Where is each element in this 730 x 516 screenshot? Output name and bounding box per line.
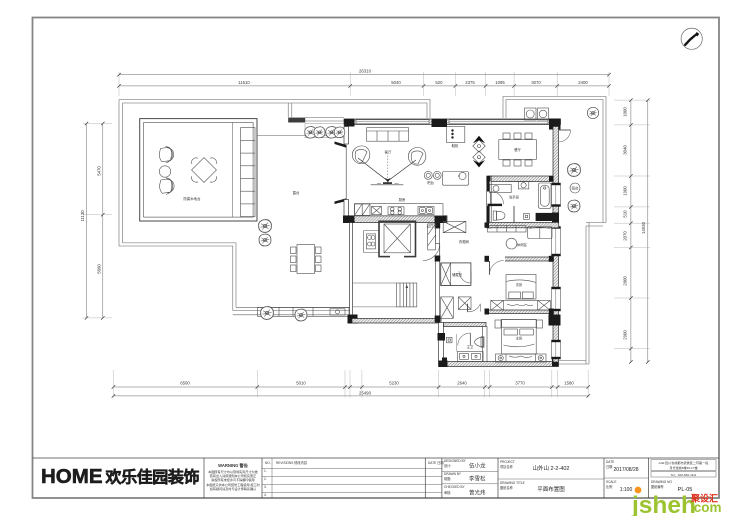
- svg-text:储藏室: 储藏室: [452, 272, 463, 277]
- svg-text:Tel：400-660-1111: Tel：400-660-1111: [671, 473, 697, 477]
- svg-text:DATE 日期: DATE 日期: [428, 460, 444, 465]
- svg-text:1095: 1095: [495, 80, 505, 85]
- svg-text:5230: 5230: [389, 381, 399, 386]
- svg-text:520: 520: [435, 80, 443, 85]
- svg-text:山外山 2-2-402: 山外山 2-2-402: [533, 464, 570, 472]
- svg-text:CHECKED BY: CHECKED BY: [444, 485, 466, 489]
- svg-text:图纸编号: 图纸编号: [651, 484, 664, 489]
- svg-text:DRAWN BY: DRAWN BY: [444, 472, 462, 476]
- svg-text:3070: 3070: [531, 80, 541, 85]
- svg-text:防腐木地台: 防腐木地台: [184, 196, 202, 201]
- svg-text:吧台: 吧台: [427, 180, 434, 185]
- svg-text:2.: 2.: [264, 477, 267, 481]
- svg-text:月光珑城6幢16-17楼: 月光珑城6幢16-17楼: [669, 465, 697, 470]
- svg-text:曾光炜: 曾光炜: [469, 489, 486, 497]
- svg-text:阳台: 阳台: [572, 186, 579, 191]
- svg-text:审核:: 审核:: [444, 490, 451, 495]
- svg-text:Add:四川省成都市武侯区二环路一段: Add:四川省成都市武侯区二环路一段: [659, 460, 709, 465]
- svg-text:NO.: NO.: [265, 461, 271, 465]
- svg-text:2375: 2375: [465, 80, 475, 85]
- svg-text:11510: 11510: [238, 80, 250, 85]
- svg-text:1000: 1000: [623, 107, 628, 117]
- svg-text:DRAWING TITLE: DRAWING TITLE: [500, 481, 525, 485]
- svg-text:SCALE: SCALE: [606, 480, 616, 484]
- svg-text:休闲区: 休闲区: [517, 242, 528, 247]
- svg-text:项目名称: 项目名称: [500, 464, 514, 469]
- svg-text:聚设汇: 聚设汇: [690, 493, 718, 504]
- svg-text:WARNING 警告: WARNING 警告: [218, 462, 249, 469]
- svg-text:5660: 5660: [97, 264, 102, 274]
- svg-text:露台: 露台: [293, 190, 300, 195]
- svg-text:次卧: 次卧: [516, 282, 523, 287]
- svg-text:jsheh: jsheh: [631, 492, 696, 516]
- svg-text:客厅: 客厅: [385, 150, 392, 155]
- svg-text:主卫: 主卫: [467, 344, 474, 349]
- svg-text:伍小龙: 伍小龙: [469, 462, 486, 470]
- svg-text:510: 510: [623, 210, 628, 218]
- svg-text:5470: 5470: [97, 166, 102, 176]
- svg-text:设计:: 设计:: [444, 463, 451, 468]
- svg-text:3770: 3770: [515, 381, 525, 386]
- svg-text:11130: 11130: [80, 210, 85, 222]
- svg-text:平面布置图: 平面布置图: [537, 485, 565, 493]
- svg-text:1:100: 1:100: [620, 487, 633, 493]
- svg-text:2900: 2900: [623, 330, 628, 340]
- svg-text:5040: 5040: [391, 80, 401, 85]
- svg-text:2400: 2400: [578, 80, 588, 85]
- svg-text:日期: 日期: [606, 464, 612, 469]
- svg-text:DATE: DATE: [606, 460, 614, 464]
- svg-text:主卧: 主卧: [516, 336, 523, 341]
- svg-text:制图:: 制图:: [444, 476, 451, 481]
- svg-text:3040: 3040: [623, 145, 628, 155]
- svg-text:PROJECT: PROJECT: [500, 460, 515, 464]
- svg-text:25490: 25490: [359, 390, 372, 395]
- svg-text:HOME: HOME: [41, 465, 103, 488]
- svg-text:厨房: 厨房: [399, 197, 406, 202]
- svg-text:2070: 2070: [623, 231, 628, 241]
- svg-text:欢乐佳园装饰: 欢乐佳园装饰: [105, 468, 200, 487]
- svg-text:1900: 1900: [623, 186, 628, 196]
- svg-text:版权所有未经许可不得翻印使用: 版权所有未经许可不得翻印使用: [211, 477, 254, 482]
- svg-text:图纸名称: 图纸名称: [500, 485, 514, 490]
- svg-text:5010: 5010: [296, 381, 306, 386]
- svg-text:李雪松: 李雪松: [469, 475, 486, 483]
- svg-text:REVISIONS 修改内容: REVISIONS 修改内容: [276, 460, 308, 465]
- svg-text:比例: 比例: [606, 484, 612, 489]
- svg-text:DESIGNED BY: DESIGNED BY: [444, 459, 467, 463]
- svg-text:餐厅: 餐厅: [514, 147, 521, 152]
- svg-text:如有疑问请及时与设计师联系确认: 如有疑问请及时与设计师联系确认: [210, 486, 256, 491]
- svg-text:2640: 2640: [457, 381, 467, 386]
- svg-text:鞋柜: 鞋柜: [452, 143, 459, 148]
- svg-text:2017/08/28: 2017/08/28: [613, 467, 638, 473]
- svg-text:衣帽间: 衣帽间: [459, 239, 470, 244]
- svg-text:2800: 2800: [623, 276, 628, 286]
- svg-text:洗手间: 洗手间: [509, 195, 520, 200]
- svg-text:3.: 3.: [264, 485, 267, 489]
- svg-text:26310: 26310: [359, 69, 372, 74]
- svg-text:4.: 4.: [264, 493, 267, 497]
- svg-text:DRAWING NO: DRAWING NO: [651, 480, 672, 484]
- svg-text:6500: 6500: [180, 381, 190, 386]
- svg-text:1.: 1.: [264, 469, 267, 473]
- svg-text:1580: 1580: [564, 381, 574, 386]
